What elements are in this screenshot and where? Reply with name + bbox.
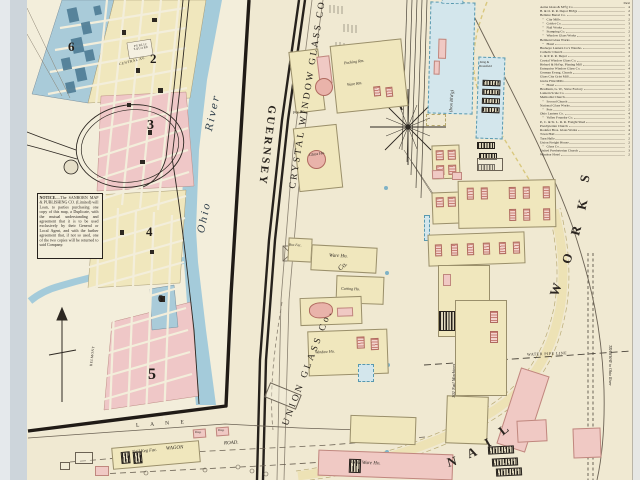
index-entry-sheet: 2 xyxy=(626,153,630,157)
index-leader-dots xyxy=(579,151,625,152)
nail-warehouse-label: Nail Ware Ho. xyxy=(352,461,381,467)
dwelling xyxy=(95,466,109,476)
window-marks xyxy=(448,150,456,160)
lumber-pile xyxy=(481,107,499,114)
index-leader-dots xyxy=(556,139,625,140)
window-marks xyxy=(523,187,530,199)
crystal-furnace xyxy=(315,78,333,96)
window-marks xyxy=(483,243,490,255)
district-number-3: 3 xyxy=(147,119,154,133)
index-leader-dots xyxy=(563,53,625,54)
window-marks xyxy=(543,186,550,198)
window-marks xyxy=(509,209,516,221)
nail-works-machine-hall xyxy=(455,300,507,396)
small-dwelling xyxy=(432,170,444,179)
window-marks xyxy=(490,331,498,343)
nail-machines-label: 102 Nail Machines xyxy=(452,364,457,398)
water-plugs xyxy=(384,186,390,454)
union-furnace-wing xyxy=(337,307,353,317)
engine-room xyxy=(443,274,451,286)
index-leader-dots xyxy=(561,147,625,148)
index-leader-dots xyxy=(573,73,625,74)
window-marks xyxy=(385,87,393,98)
window-marks xyxy=(373,86,381,97)
district-number-6b: 6 xyxy=(158,295,163,305)
publisher-notice-box: NOTICE.—The SANBORN MAP & PUBLISHING CO.… xyxy=(37,193,103,259)
ware-house-label: Ware Ho. xyxy=(329,254,348,260)
index-leader-dots xyxy=(562,24,625,25)
index-leader-dots xyxy=(567,16,625,17)
window-marks xyxy=(467,188,474,200)
stock-pile xyxy=(492,457,518,466)
scan-margin-left-inner xyxy=(10,0,27,480)
union-box-factory xyxy=(287,237,312,262)
index-leader-dots xyxy=(574,118,625,119)
index-leader-dots xyxy=(581,69,625,70)
index-leader-dots xyxy=(568,102,625,103)
window-marks xyxy=(499,242,506,254)
index-of-specials: Sheet Aetna Glass & M'f'g Co. 4 B. & O. … xyxy=(540,2,630,160)
iron-shed xyxy=(358,364,374,382)
index-leader-dots xyxy=(555,135,625,136)
district-number-5: 5 xyxy=(148,367,156,383)
lumber-pile xyxy=(482,80,500,87)
index-leader-dots xyxy=(584,90,625,91)
index-leader-dots xyxy=(561,155,625,156)
stock-pile xyxy=(121,451,131,464)
index-leader-dots xyxy=(578,131,625,132)
shed xyxy=(75,452,93,464)
sanborn-map-sheet: GUERNSEY CRYSTAL WINDOW GLASS CO. UNION … xyxy=(0,0,640,480)
index-leader-dots xyxy=(570,77,625,78)
window-marks xyxy=(448,197,456,207)
index-leader-dots xyxy=(571,40,625,41)
index-leader-dots xyxy=(565,81,625,82)
index-leader-dots xyxy=(577,36,625,37)
index-leader-dots xyxy=(575,8,625,9)
index-leader-dots xyxy=(566,98,625,99)
window-marks xyxy=(509,187,516,199)
window-marks xyxy=(356,336,364,348)
window-marks xyxy=(513,241,520,253)
small-dwelling xyxy=(452,172,462,180)
yard-plot xyxy=(426,114,446,126)
index-leader-dots xyxy=(568,57,625,58)
nail-works-top-block xyxy=(427,231,525,266)
index-leader-dots xyxy=(586,122,625,123)
index-leader-dots xyxy=(577,61,625,62)
index-leader-dots xyxy=(571,106,625,107)
district-number-4: 4 xyxy=(146,225,153,238)
lumber-pile xyxy=(477,142,495,149)
index-leader-dots xyxy=(583,49,625,50)
shed xyxy=(60,462,70,470)
lumber-pile xyxy=(482,98,500,105)
window-marks xyxy=(481,187,488,199)
shop-building-2 xyxy=(516,419,547,443)
index-entry-name: Windsor Hotel xyxy=(540,153,560,157)
scan-margin-left-outer xyxy=(0,0,10,480)
stock-pile xyxy=(496,467,522,476)
iron-building-bay xyxy=(441,0,463,4)
crystal-ware-block xyxy=(330,38,409,113)
window-marks xyxy=(371,338,379,350)
shop-building xyxy=(477,158,503,171)
window-marks xyxy=(467,243,474,255)
king-label-2: Dronsfield xyxy=(479,65,492,68)
road-label: ROAD. xyxy=(224,441,239,447)
index-leader-dots xyxy=(565,114,625,115)
district-number-6: 6 xyxy=(68,40,75,53)
lumber-pile xyxy=(482,89,500,96)
index-leader-dots xyxy=(565,94,625,95)
window-marks xyxy=(490,311,498,323)
index-entry: Windsor Hotel 2 xyxy=(540,153,630,157)
window-marks xyxy=(523,209,530,221)
window-marks xyxy=(435,244,442,256)
index-leader-dots xyxy=(561,20,625,21)
king-dronsfield-building xyxy=(476,57,506,140)
nail-works-upper-wing xyxy=(458,179,557,229)
publisher-notice-text: NOTICE.—The SANBORN MAP & PUBLISHING CO.… xyxy=(38,194,100,249)
index-leader-dots xyxy=(566,32,625,33)
district-number-2: 2 xyxy=(150,52,157,65)
mill-building-2 xyxy=(431,192,460,225)
window-marks xyxy=(436,150,444,160)
box-factory-label: Box Fac. xyxy=(289,244,302,248)
index-list: Aetna Glass & M'f'g Co. 4 B. & O. R. R. … xyxy=(540,6,630,158)
nail-warehouse xyxy=(318,450,454,480)
index-leader-dots xyxy=(578,12,625,13)
index-leader-dots xyxy=(555,44,625,45)
index-leader-dots xyxy=(553,110,625,111)
index-leader-dots xyxy=(563,28,625,29)
dwelling-label: Dwg. xyxy=(195,431,201,434)
index-leader-dots xyxy=(555,85,625,86)
dwelling-label: Dwg. xyxy=(218,429,224,432)
mill-house xyxy=(350,415,417,445)
boiler-house xyxy=(439,311,455,331)
notice-body: —The SANBORN MAP & PUBLISHING CO. (Limit… xyxy=(40,196,99,248)
window-marks xyxy=(543,208,550,220)
tramway-label: TRAMWAY to Ohio River xyxy=(608,345,612,386)
window-marks xyxy=(451,244,458,256)
scan-margin-right xyxy=(632,0,640,480)
cutting-house-label: Cutting Ho. xyxy=(341,287,360,292)
furnace-room xyxy=(438,39,447,59)
index-leader-dots xyxy=(583,65,625,66)
index-leader-dots xyxy=(570,143,625,144)
window-marks xyxy=(436,197,444,207)
index-leader-dots xyxy=(569,126,625,127)
shop-building-3 xyxy=(572,428,601,459)
furnace-room xyxy=(434,61,440,75)
